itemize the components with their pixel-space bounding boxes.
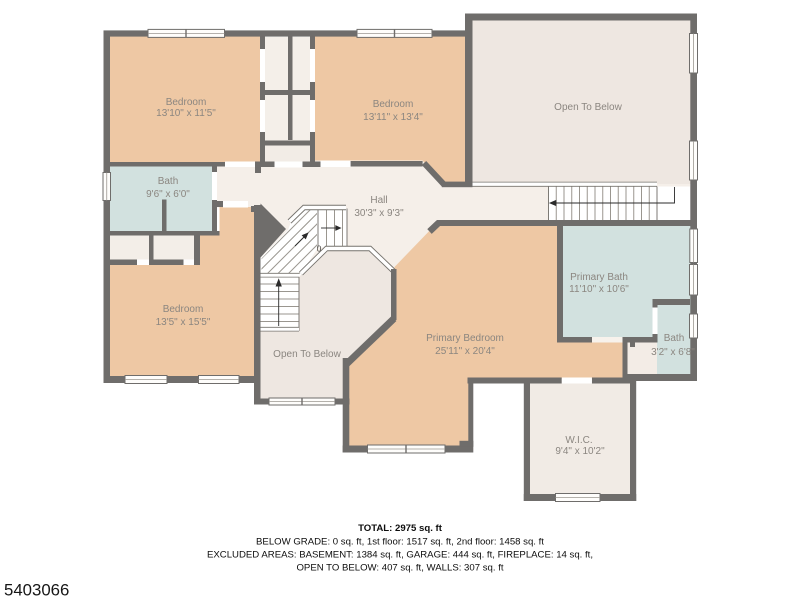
svg-text:25'11" x 20'4": 25'11" x 20'4" xyxy=(435,346,495,357)
svg-text:0: 0 xyxy=(317,244,322,254)
svg-text:TOTAL: 2975 sq. ft: TOTAL: 2975 sq. ft xyxy=(358,523,443,534)
svg-text:Open To Below: Open To Below xyxy=(273,349,341,360)
svg-text:9'4" x 10'2": 9'4" x 10'2" xyxy=(555,446,605,457)
svg-text:Primary Bath: Primary Bath xyxy=(570,272,628,283)
svg-text:Bedroom: Bedroom xyxy=(373,99,414,110)
svg-text:13'10" x 11'5": 13'10" x 11'5" xyxy=(156,108,216,119)
svg-text:OPEN TO BELOW: 407 sq. ft, WAL: OPEN TO BELOW: 407 sq. ft, WALLS: 307 sq… xyxy=(296,562,503,573)
svg-text:Open To Below: Open To Below xyxy=(554,102,622,113)
svg-text:9'6" x 6'0": 9'6" x 6'0" xyxy=(146,189,190,200)
svg-text:3'2" x 6'8": 3'2" x 6'8" xyxy=(651,347,695,358)
svg-text:Bedroom: Bedroom xyxy=(166,97,207,108)
svg-text:Hall: Hall xyxy=(370,195,387,206)
svg-text:13'11" x 13'4": 13'11" x 13'4" xyxy=(363,112,423,123)
svg-text:11'10" x 10'6": 11'10" x 10'6" xyxy=(569,284,629,295)
svg-text:Primary Bedroom: Primary Bedroom xyxy=(426,333,504,344)
svg-text:BELOW GRADE: 0 sq. ft, 1st flo: BELOW GRADE: 0 sq. ft, 1st floor: 1517 s… xyxy=(256,536,544,547)
svg-text:30'3" x 9'3": 30'3" x 9'3" xyxy=(354,208,404,219)
svg-text:5403066: 5403066 xyxy=(4,581,69,600)
svg-text:Bath: Bath xyxy=(664,333,685,344)
svg-text:Bath: Bath xyxy=(158,176,179,187)
svg-text:13'5" x 15'5": 13'5" x 15'5" xyxy=(156,317,211,328)
svg-text:W.I.C.: W.I.C. xyxy=(565,435,592,446)
svg-text:EXCLUDED AREAS: BASEMENT: 1384: EXCLUDED AREAS: BASEMENT: 1384 sq. ft, G… xyxy=(207,549,593,560)
svg-text:Bedroom: Bedroom xyxy=(163,304,204,315)
